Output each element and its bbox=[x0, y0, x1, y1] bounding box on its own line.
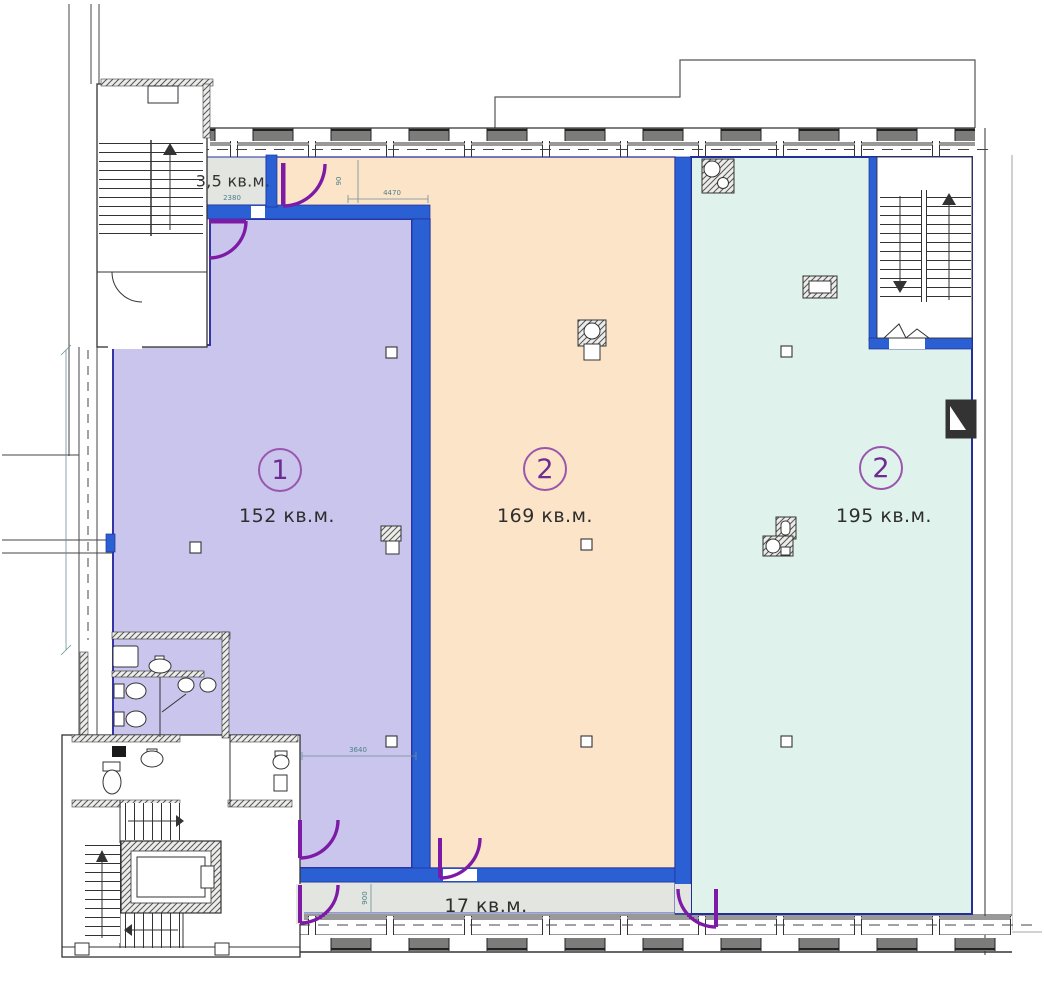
shower-icon bbox=[113, 646, 138, 667]
bottom-window-band bbox=[280, 915, 1040, 952]
toilet-icon bbox=[103, 770, 121, 794]
floor-plan-drawing bbox=[0, 0, 1044, 992]
dimension-3640: 3640 bbox=[349, 746, 367, 754]
room-2-number-badge: 2 bbox=[523, 447, 567, 491]
sink-icon bbox=[149, 659, 171, 673]
elevator-shaft bbox=[121, 841, 221, 913]
stairwell-top-right bbox=[877, 157, 972, 338]
room-1-area-label: 152 кв.м. bbox=[239, 505, 335, 527]
room-3-area-label: 195 кв.м. bbox=[836, 505, 932, 527]
stair-elevator-block bbox=[62, 735, 304, 957]
floor-plan: 1 152 кв.м. 2 169 кв.м. 2 195 кв.м. 3,5 … bbox=[0, 0, 1044, 992]
dimension-90: 90 bbox=[335, 177, 343, 186]
room-2-area-label: 169 кв.м. bbox=[497, 505, 593, 527]
toilet-icon bbox=[126, 683, 146, 699]
corridor-area-label: 17 кв.м. bbox=[444, 895, 527, 917]
door-leaf bbox=[298, 885, 302, 923]
stairwell-top-left bbox=[97, 79, 213, 349]
sink-icon bbox=[141, 751, 163, 767]
room-3-number-badge: 2 bbox=[859, 446, 903, 490]
door-leaf bbox=[281, 163, 286, 205]
dimension-4470: 4470 bbox=[383, 189, 401, 197]
sink-icon bbox=[200, 678, 216, 692]
room-1-number-badge: 1 bbox=[258, 448, 302, 492]
dimension-2380: 2380 bbox=[223, 194, 241, 202]
entry-room-area-label: 3,5 кв.м. bbox=[196, 172, 271, 191]
sink-icon bbox=[178, 678, 194, 692]
faucet-icon bbox=[112, 746, 126, 757]
door-leaf bbox=[438, 838, 442, 878]
door-leaf bbox=[209, 219, 246, 224]
door-leaf bbox=[298, 820, 302, 858]
door-leaf bbox=[714, 889, 718, 927]
elevator-car bbox=[137, 857, 205, 897]
dimension-900: 900 bbox=[361, 891, 369, 904]
sink-icon bbox=[273, 755, 289, 769]
top-window-band bbox=[198, 128, 990, 157]
toilet-icon bbox=[126, 711, 146, 727]
